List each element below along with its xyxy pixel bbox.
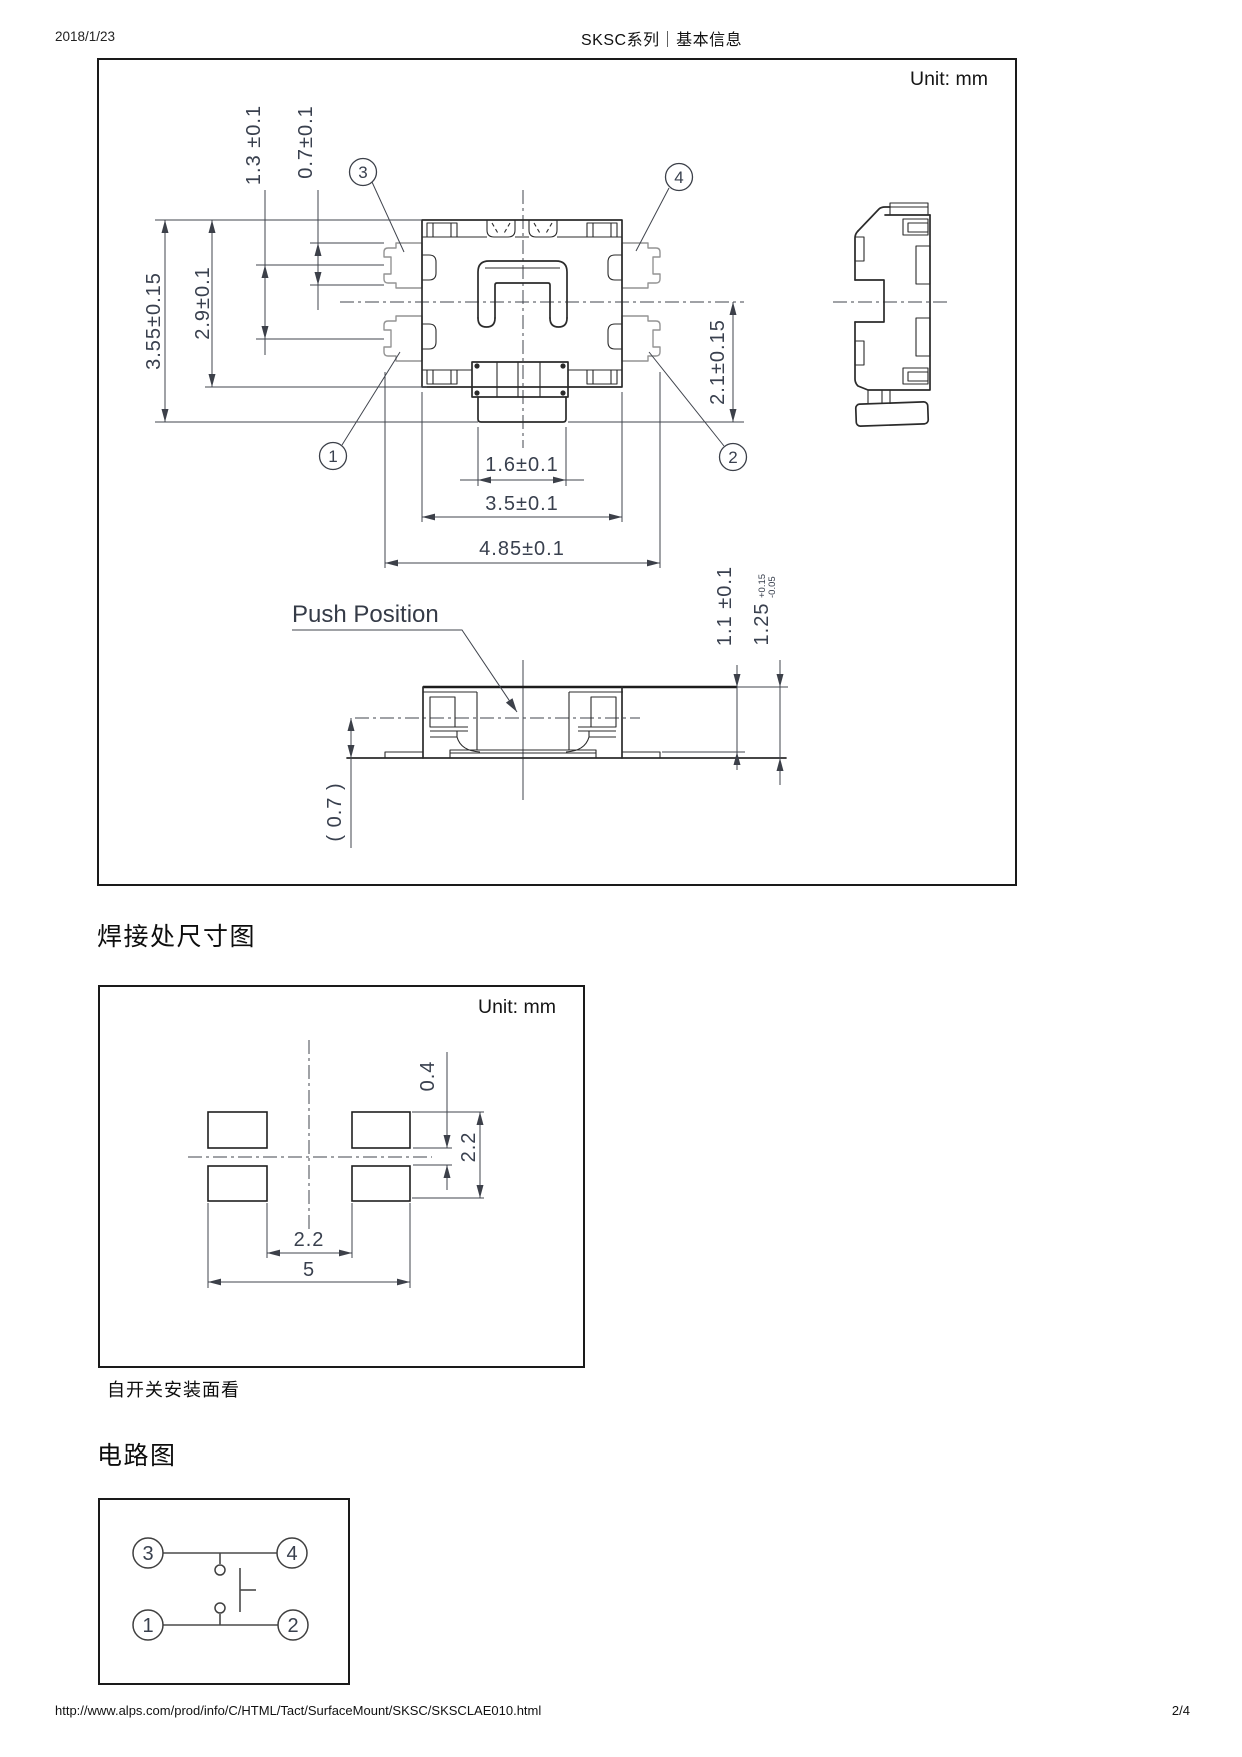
- footer-url: http://www.alps.com/prod/info/C/HTML/Tac…: [55, 1703, 541, 1718]
- land-pattern-drawing: Unit: mm 0.4 2.2 2.2 5: [98, 985, 585, 1368]
- land-pattern-heading: 焊接处尺寸图: [97, 917, 256, 953]
- land-dim-0-4: 0.4: [417, 1061, 439, 1092]
- push-position: Push Position: [292, 601, 517, 712]
- dim-label-0-7-ref: ( 0.7 ): [324, 782, 346, 841]
- dim-label-1-1: 1.1 ±0.1: [714, 566, 736, 646]
- callout-2-label: 2: [728, 448, 737, 467]
- pin-4-label: 4: [286, 1543, 297, 1565]
- footer-page-number: 2/4: [1172, 1703, 1190, 1718]
- unit-label: Unit: mm: [910, 68, 988, 90]
- dim-label-3-5: 3.5±0.1: [485, 493, 559, 515]
- dim-label-2-1: 2.1±0.15: [707, 319, 729, 405]
- dim-label-1-6: 1.6±0.1: [485, 454, 559, 476]
- contact-bottom: [215, 1603, 225, 1613]
- pin-3-label: 3: [142, 1543, 153, 1565]
- header-date: 2018/1/23: [55, 29, 115, 44]
- outline-drawing: Unit: mm: [97, 58, 1017, 886]
- dim-label-1-25-tol-minus: -0.05: [767, 576, 778, 598]
- land-unit-label: Unit: mm: [478, 996, 556, 1018]
- side-view: [833, 203, 950, 426]
- dim-label-0-7: 0.7±0.1: [295, 105, 317, 179]
- callout-1-label: 1: [328, 447, 337, 466]
- dim-label-3-55: 3.55±0.15: [143, 272, 165, 370]
- dimension-lines: [165, 190, 780, 848]
- datasheet-page: { "header": { "date": "2018/1/23", "titl…: [0, 0, 1242, 1757]
- circuit-wires: [163, 1553, 278, 1625]
- circuit-border: [99, 1499, 349, 1684]
- pad-bottom-left: [208, 1166, 267, 1201]
- dim-label-1-25: 1.25: [751, 603, 773, 646]
- circuit-heading: 电路图: [97, 1436, 177, 1472]
- callouts: 3 4 1 2: [320, 159, 747, 471]
- arrowheads: [162, 220, 784, 771]
- callout-4-label: 4: [674, 168, 683, 187]
- land-dim-2-2-v: 2.2: [458, 1132, 480, 1163]
- front-view: [347, 660, 788, 800]
- contact-top: [215, 1565, 225, 1575]
- land-pattern-caption: 自开关安装面看: [107, 1376, 240, 1402]
- top-view: [340, 190, 744, 448]
- push-position-label: Push Position: [292, 601, 439, 628]
- pad-top-right: [352, 1112, 410, 1148]
- page-title: SKSC系列｜基本信息: [581, 26, 742, 50]
- dim-label-1-3: 1.3 ±0.1: [243, 105, 265, 185]
- pad-bottom-right: [352, 1166, 410, 1201]
- dim-label-2-9: 2.9±0.1: [192, 266, 214, 340]
- land-pattern-border: [99, 986, 584, 1367]
- land-dim-5: 5: [303, 1259, 315, 1281]
- callout-3-label: 3: [358, 163, 367, 182]
- pin-2-label: 2: [287, 1615, 298, 1637]
- pin-1-label: 1: [142, 1615, 153, 1637]
- land-dim-2-2-h: 2.2: [294, 1229, 325, 1251]
- extension-lines: [155, 220, 745, 752]
- dim-label-4-85: 4.85±0.1: [479, 538, 565, 560]
- pad-top-left: [208, 1112, 267, 1148]
- circuit-drawing: 3 4 1 2: [98, 1498, 350, 1685]
